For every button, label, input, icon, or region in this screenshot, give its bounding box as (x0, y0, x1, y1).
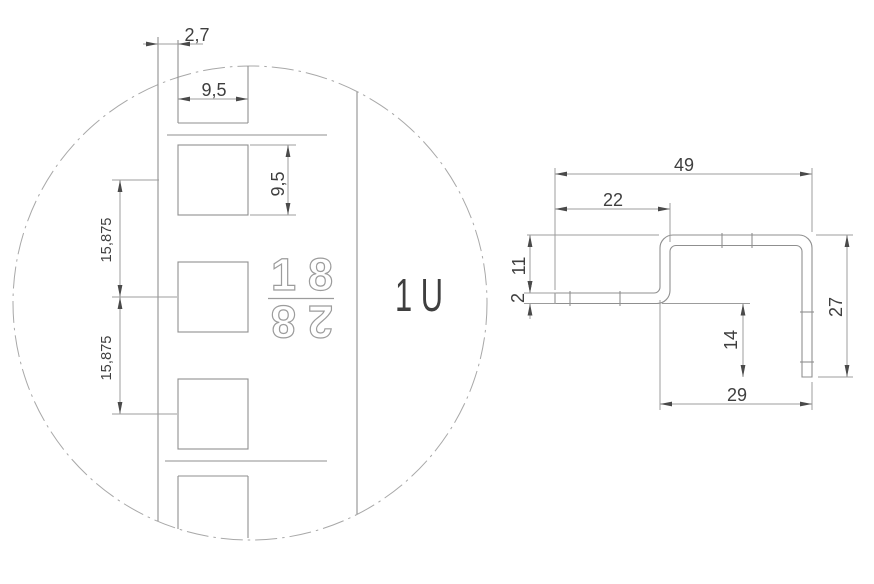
square-hole-4 (178, 379, 248, 449)
dim-front-leg-height-value: 14 (721, 330, 741, 350)
dim-overall-height: 27 (826, 235, 847, 377)
dim-overall-width-value: 49 (674, 155, 694, 175)
square-hole-3 (178, 262, 248, 332)
detail-view: 2,7 9,5 9,5 15,875 15,875 1 U (13, 25, 487, 540)
profile-view: 49 22 11 2 27 14 29 (508, 155, 853, 410)
dim-hole-pitch-upper-value: 15,875 (98, 218, 115, 263)
dim-edge-offset-value: 2,7 (184, 25, 209, 45)
dim-hole-pitch-upper: 15,875 (98, 180, 177, 297)
dim-bottom-width-value: 29 (727, 385, 747, 405)
rail-unit-markings: 18 28 (259, 249, 345, 347)
dim-offset-height-value: 11 (509, 257, 529, 276)
rail-marking-bottom: 28 (259, 296, 333, 347)
rack-rail-technical-drawing: 2,7 9,5 9,5 15,875 15,875 1 U (0, 0, 874, 584)
dim-hole-pitch-lower-value: 15,875 (98, 336, 115, 381)
dim-top-flange-width: 22 (555, 190, 670, 210)
dim-overall-width: 49 (555, 155, 812, 175)
dim-offset-height: 11 (509, 235, 530, 293)
dim-top-flange-width-value: 22 (603, 190, 623, 210)
dim-hole-width-value: 9,5 (201, 80, 226, 100)
profile-extension-lines (524, 168, 853, 410)
dim-hole-height-value: 9,5 (268, 171, 288, 196)
square-hole-2 (178, 145, 248, 215)
profile-tick-marks (570, 233, 814, 362)
unit-height-label: 1 U (395, 269, 443, 321)
dim-hole-pitch-lower: 15,875 (98, 297, 177, 414)
dim-bottom-width: 29 (660, 385, 812, 405)
dim-material-thickness: 2 (508, 277, 530, 319)
dim-front-leg-height: 14 (721, 304, 743, 378)
dim-hole-height: 9,5 (250, 145, 296, 215)
rail-marking-top: 18 (271, 249, 345, 300)
dim-hole-width: 9,5 (178, 80, 248, 100)
drawing-sheet: 2,7 9,5 9,5 15,875 15,875 1 U (0, 0, 874, 584)
profile-outline (555, 235, 812, 377)
square-hole-5-partial (178, 476, 248, 538)
dim-edge-offset: 2,7 (143, 25, 210, 45)
dim-material-thickness-value: 2 (508, 293, 528, 303)
dim-overall-height-value: 27 (826, 297, 846, 317)
